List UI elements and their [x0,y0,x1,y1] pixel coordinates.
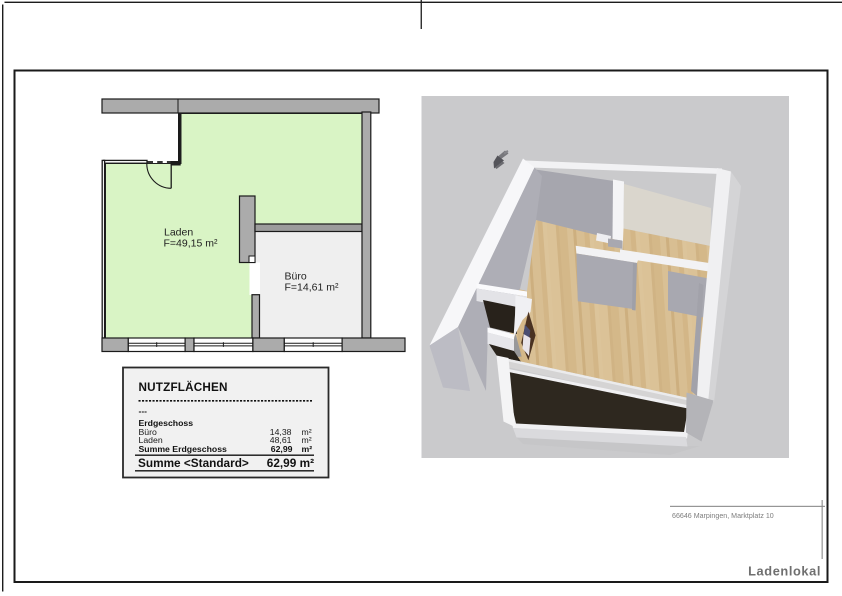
svg-text:NUTZFLÄCHEN: NUTZFLÄCHEN [139,381,228,394]
svg-text:Summe <Standard>: Summe <Standard> [138,456,249,470]
svg-text:66646 Marpingen, Marktplatz 10: 66646 Marpingen, Marktplatz 10 [672,512,774,520]
svg-text:62,99 m²: 62,99 m² [267,456,314,470]
svg-text:---: --- [139,406,148,416]
svg-text:Ladenlokal: Ladenlokal [748,564,821,579]
svg-text:F=14,61 m²: F=14,61 m² [285,282,339,294]
svg-text:Summe Erdgeschoss: Summe Erdgeschoss [139,444,228,454]
svg-text:62,99: 62,99 [271,444,293,454]
svg-text:m²: m² [302,444,313,454]
svg-text:F=49,15 m²: F=49,15 m² [164,238,218,250]
